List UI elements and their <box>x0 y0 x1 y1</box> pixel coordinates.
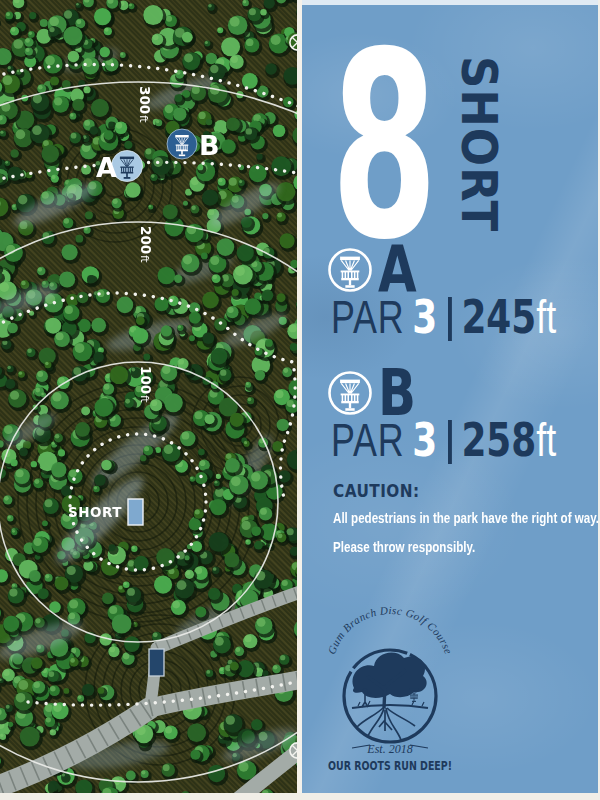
logo-arc-text: Gum Branch Disc Golf Course <box>325 604 455 656</box>
distance-a: 245 <box>461 290 536 344</box>
par-value-a: 3 <box>412 290 437 344</box>
par-divider-a <box>448 297 452 341</box>
distance-b: 258 <box>461 413 536 467</box>
course-logo: Gum Branch Disc Golf Course <box>318 602 463 781</box>
frame-bottom <box>0 793 600 800</box>
marker-a-label: A <box>96 152 117 183</box>
course-map-svg: 300ft 200ft 100ft SHORT <box>0 0 298 793</box>
logo-tree <box>352 652 428 740</box>
basket-a-par-line: PAR3245ft <box>331 294 556 341</box>
par-value-b: 3 <box>412 413 437 467</box>
basket-b-par-line: PAR3258ft <box>331 417 556 464</box>
hole-number: 8 <box>331 53 438 240</box>
par-divider-b <box>448 420 452 464</box>
basket-marker-a: A <box>96 151 143 184</box>
caution-heading: CAUTION: <box>333 480 571 501</box>
basket-b-icon <box>326 369 374 417</box>
logo-tagline: OUR ROOTS RUN DEEP! <box>328 758 452 773</box>
logo-established: Est. 2018 <box>366 742 412 756</box>
caution-block: CAUTION: All pedestrians in the park hav… <box>333 480 600 559</box>
par-word-a: PAR <box>331 291 404 343</box>
distance-unit-a: ft <box>536 291 556 343</box>
distance-unit-b: ft <box>536 414 556 466</box>
tee-name-vertical: SHORT <box>454 56 504 232</box>
info-panel: 8 SHORT A PAR3245ft B PAR3258ft CAUTION: <box>302 0 598 793</box>
tee-short-label: SHORT <box>68 504 122 520</box>
par-word-b: PAR <box>331 414 404 466</box>
marker-b-label: B <box>199 130 220 161</box>
course-map: 300ft 200ft 100ft SHORT <box>0 0 298 793</box>
basket-a-icon <box>326 246 374 294</box>
hole-sign-poster: 300ft 200ft 100ft SHORT <box>0 0 600 800</box>
tee-long <box>149 649 164 676</box>
caution-line-2: Please throw responsibly. <box>333 537 557 559</box>
caution-line-1: All pedestrians in the park have the rig… <box>333 508 557 530</box>
